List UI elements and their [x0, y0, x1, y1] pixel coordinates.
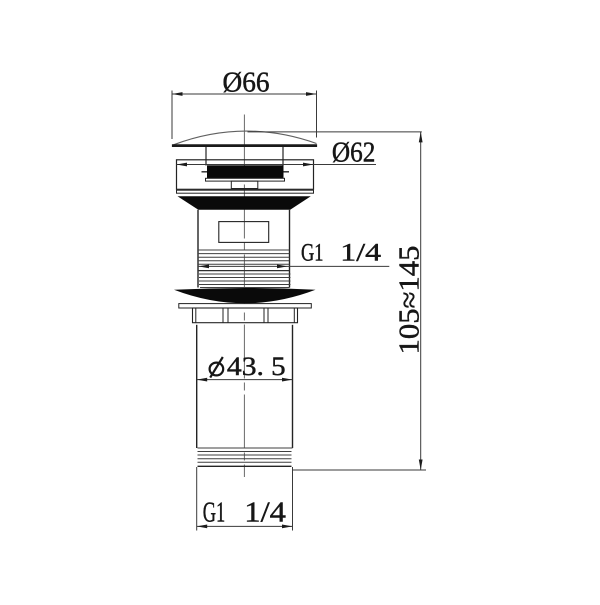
- svg-text:105≈145: 105≈145: [393, 246, 425, 355]
- svg-text:Ø62: Ø62: [332, 137, 376, 169]
- svg-text:1/4: 1/4: [340, 239, 381, 266]
- svg-text:5: 5: [271, 352, 286, 381]
- svg-text:Ø66: Ø66: [223, 67, 270, 99]
- svg-text:G1: G1: [301, 239, 324, 266]
- svg-text:G1: G1: [203, 497, 226, 529]
- svg-text:1/4: 1/4: [244, 497, 286, 529]
- svg-text:43.: 43.: [227, 352, 264, 381]
